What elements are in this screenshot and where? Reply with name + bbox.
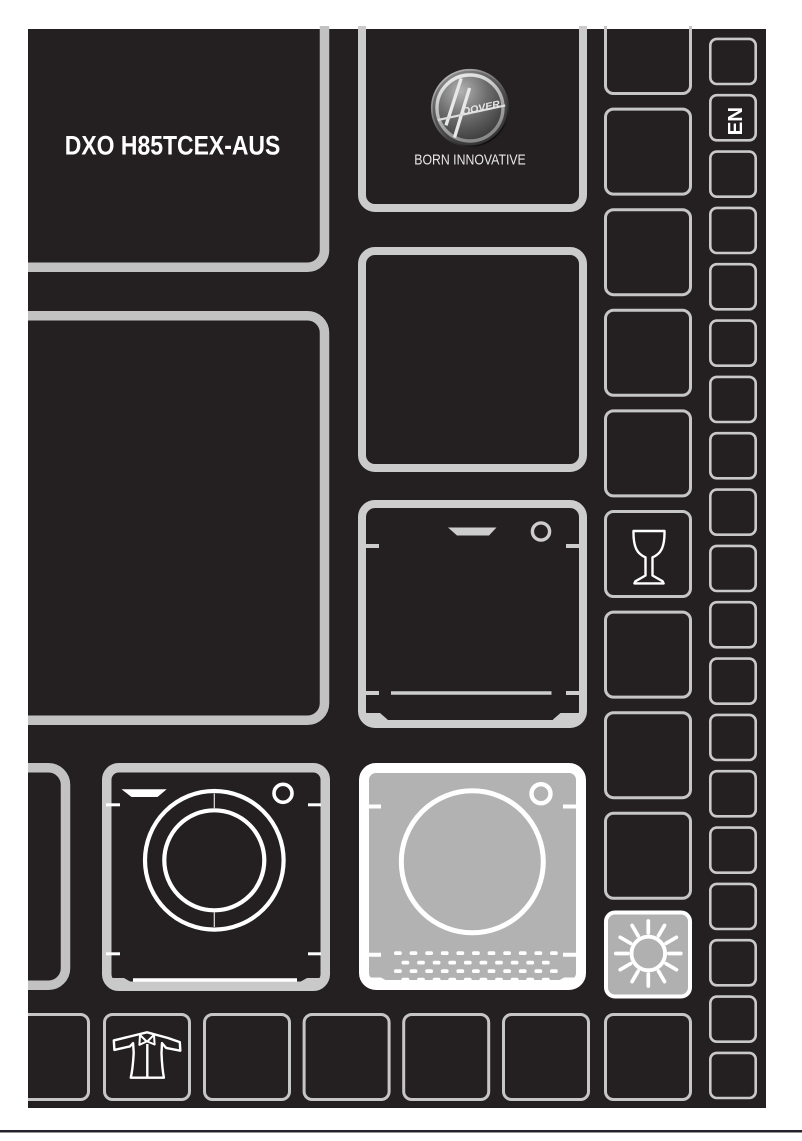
svg-text:EN: EN	[724, 107, 747, 135]
svg-text:DXO H85TCEX-AUS: DXO H85TCEX-AUS	[65, 131, 280, 161]
svg-text:BORN INNOVATIVE: BORN INNOVATIVE	[414, 151, 526, 168]
